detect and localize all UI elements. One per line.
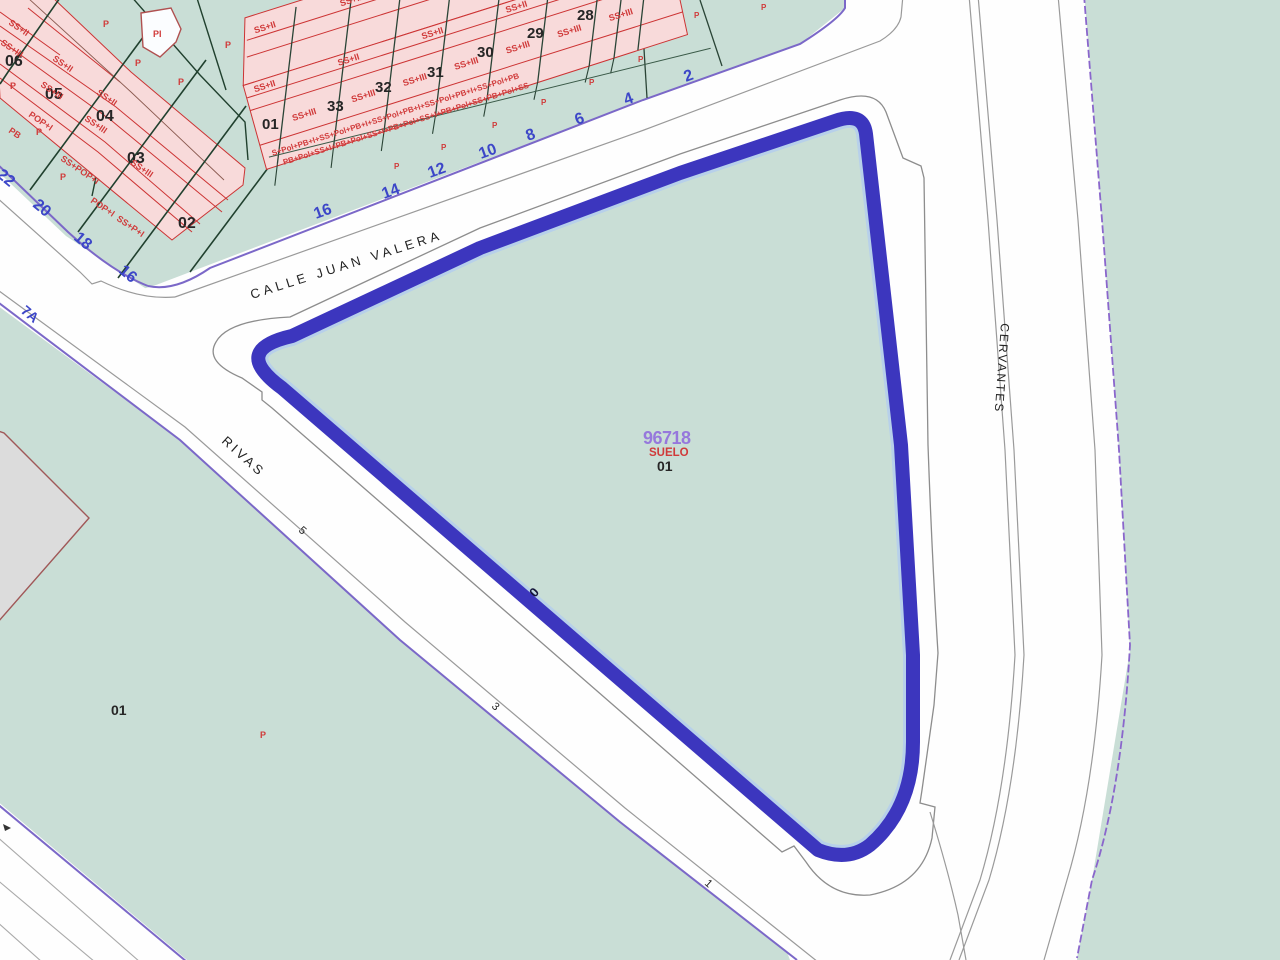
svg-text:P: P (36, 127, 42, 137)
svg-text:01: 01 (262, 116, 279, 133)
svg-text:31: 31 (427, 64, 444, 81)
svg-text:P: P (541, 98, 547, 107)
svg-text:P: P (178, 77, 184, 87)
svg-text:P: P (260, 730, 266, 740)
svg-text:P: P (694, 11, 700, 20)
svg-text:96718: 96718 (643, 428, 691, 448)
svg-text:28: 28 (577, 7, 594, 24)
svg-text:P: P (441, 143, 447, 152)
svg-text:P: P (492, 121, 498, 130)
svg-text:P: P (638, 55, 644, 64)
svg-text:P: P (225, 40, 231, 50)
svg-text:PI: PI (153, 29, 162, 39)
svg-text:33: 33 (327, 98, 344, 115)
svg-text:P: P (103, 19, 109, 29)
svg-text:P: P (60, 172, 66, 182)
svg-text:P: P (761, 3, 767, 12)
svg-text:30: 30 (477, 44, 494, 61)
svg-text:P: P (589, 78, 595, 87)
svg-text:P: P (394, 162, 400, 171)
svg-text:01: 01 (657, 458, 673, 474)
svg-text:01: 01 (111, 702, 127, 718)
svg-text:32: 32 (375, 79, 392, 96)
svg-text:P: P (10, 81, 16, 91)
svg-text:P: P (135, 58, 141, 68)
svg-text:29: 29 (527, 25, 544, 42)
svg-text:02: 02 (178, 215, 196, 232)
